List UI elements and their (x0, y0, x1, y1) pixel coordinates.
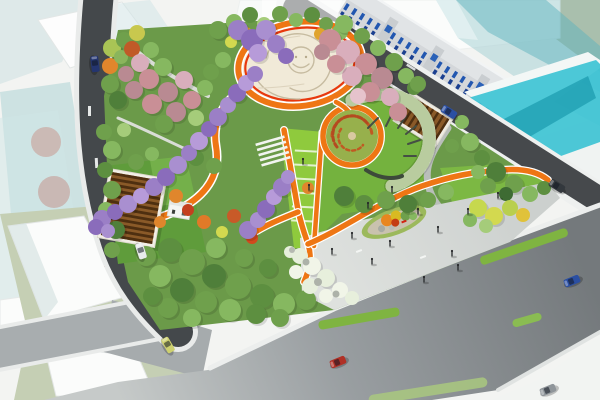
tree-canopy (183, 309, 201, 327)
tree-canopy (101, 75, 119, 93)
tree-canopy (202, 264, 226, 288)
garden-rock (333, 291, 340, 298)
lane-dash (95, 158, 99, 168)
tree-canopy (389, 103, 407, 121)
tree-canopy (216, 226, 228, 238)
scene-layers (0, 0, 600, 400)
tree-canopy (399, 195, 417, 213)
tree-canopy (278, 48, 294, 64)
tree-canopy (117, 123, 131, 137)
person-head (331, 248, 333, 250)
tree-canopy (206, 238, 226, 258)
tree-canopy (314, 44, 330, 60)
tree-canopy (516, 208, 530, 222)
tree-canopy (247, 66, 263, 82)
tree-canopy (259, 259, 277, 277)
tree-canopy (215, 52, 231, 68)
person-head (423, 276, 425, 278)
person-head (302, 158, 304, 160)
tree-canopy (142, 94, 162, 114)
tree-canopy (438, 184, 454, 200)
tree-canopy (227, 209, 241, 223)
tree-canopy (143, 287, 161, 305)
person-head (467, 208, 469, 210)
tree-canopy (246, 304, 266, 324)
garden-rock (314, 278, 322, 286)
tree-canopy (272, 6, 288, 22)
person-head (391, 186, 393, 188)
tree-canopy (502, 200, 518, 216)
lane-dash (88, 106, 91, 116)
tree-canopy (334, 186, 354, 206)
tree-canopy (350, 88, 366, 104)
tree-canopy (145, 147, 159, 161)
tree-canopy (96, 124, 112, 140)
tree-canopy (479, 219, 493, 233)
tree-canopy (182, 204, 194, 216)
tree-canopy (242, 7, 258, 23)
tree-canopy (471, 165, 485, 179)
tree-canopy (131, 54, 149, 72)
flowerbed-center (348, 132, 356, 140)
person-head (457, 264, 459, 266)
tree-canopy (195, 291, 217, 313)
tree-canopy (289, 13, 303, 27)
tree-canopy (474, 150, 490, 166)
tree-canopy (420, 192, 436, 208)
tree-canopy (345, 291, 359, 305)
person-head (308, 184, 310, 186)
tree-canopy (235, 249, 253, 267)
tree-canopy (281, 170, 295, 184)
tree-canopy (206, 158, 222, 174)
tree-canopy (354, 28, 370, 44)
person-head (497, 192, 499, 194)
tree-canopy (149, 265, 171, 287)
tree-canopy (203, 64, 219, 80)
tree-canopy (480, 178, 496, 194)
person-head (389, 240, 391, 242)
tree-canopy (101, 224, 115, 238)
tree-canopy (355, 195, 373, 213)
tree-canopy (154, 58, 172, 76)
tree-canopy (103, 181, 121, 199)
tree-canopy (129, 25, 145, 41)
tree-canopy (103, 141, 121, 159)
tree-canopy (370, 40, 386, 56)
tree-canopy (154, 216, 166, 228)
tree-canopy (183, 91, 201, 109)
person-head (371, 258, 373, 260)
tree-canopy (175, 71, 193, 89)
tree-canopy (319, 289, 333, 303)
tree-canopy (410, 76, 426, 92)
garden-rock (303, 259, 310, 266)
tree-canopy (225, 273, 251, 299)
tree-canopy (188, 110, 204, 126)
car-glass (92, 60, 99, 66)
tree-canopy (302, 182, 314, 194)
tree-canopy (271, 309, 289, 327)
tree-canopy (304, 7, 320, 23)
plaza-mural-eye (305, 56, 307, 58)
person-head (367, 202, 369, 204)
tree-canopy (327, 55, 345, 73)
park-masterplan-rendering (0, 0, 600, 400)
tree-canopy (197, 80, 213, 96)
person-head (417, 208, 419, 210)
tree-canopy (522, 186, 538, 202)
tree-canopy (109, 91, 127, 109)
tree-canopy (104, 242, 120, 258)
tree-canopy (385, 53, 403, 71)
tree-canopy (219, 299, 241, 321)
person-head (437, 226, 439, 228)
tree-canopy (461, 133, 479, 151)
garden-rock (289, 247, 295, 253)
plaza-mural-eye (295, 56, 297, 58)
tree-canopy (128, 154, 144, 170)
tree-canopy (169, 189, 183, 203)
tree-canopy (249, 44, 267, 62)
person-head (451, 250, 453, 252)
tree-canopy (197, 215, 211, 229)
tree-canopy (97, 162, 113, 178)
tree-canopy (158, 82, 178, 102)
tree-canopy (445, 139, 459, 153)
tree-canopy (289, 265, 303, 279)
tree-canopy (158, 238, 182, 262)
tree-canopy (209, 21, 227, 39)
tree-canopy (170, 278, 194, 302)
tree-canopy (118, 66, 134, 82)
person-head (351, 232, 353, 234)
tree-canopy (335, 15, 353, 33)
tree-canopy (155, 115, 173, 133)
tree-canopy (143, 42, 159, 58)
scene-svg (0, 0, 600, 400)
tree-canopy (179, 249, 205, 275)
